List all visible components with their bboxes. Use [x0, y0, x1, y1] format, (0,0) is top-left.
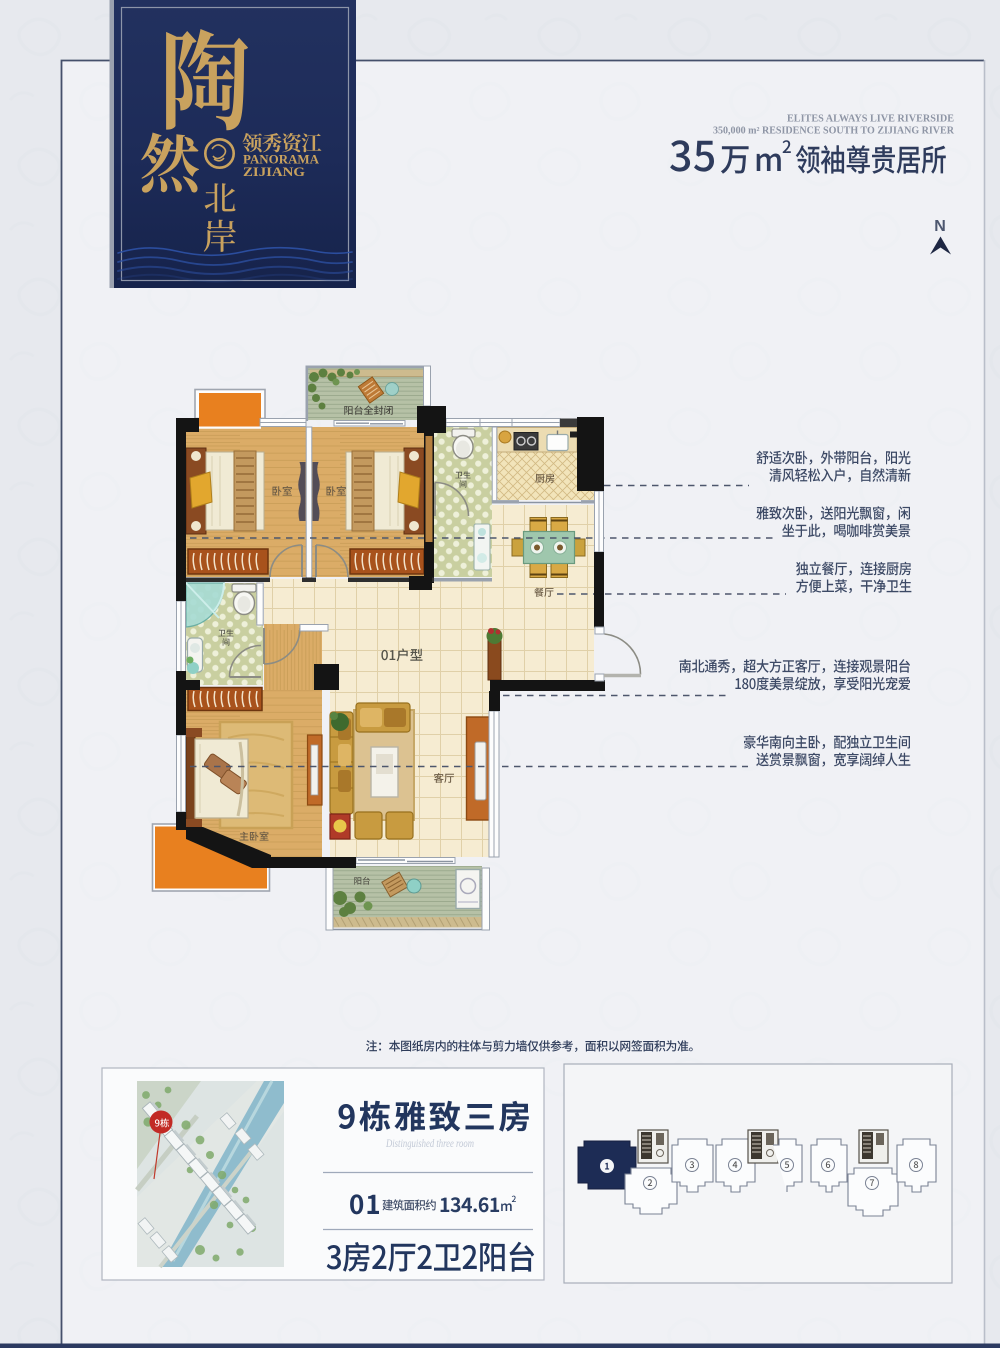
- svg-text:350,000 m² RESIDENCE SOUTH TO: 350,000 m² RESIDENCE SOUTH TO ZIJIANG RI…: [713, 126, 955, 137]
- svg-text:N: N: [934, 218, 946, 235]
- svg-text:Distinguished three room: Distinguished three room: [385, 1136, 474, 1150]
- svg-text:ELITES ALWAYS LIVE RIVERSIDE: ELITES ALWAYS LIVE RIVERSIDE: [787, 113, 954, 125]
- svg-text:ZIJIANG: ZIJIANG: [243, 164, 305, 179]
